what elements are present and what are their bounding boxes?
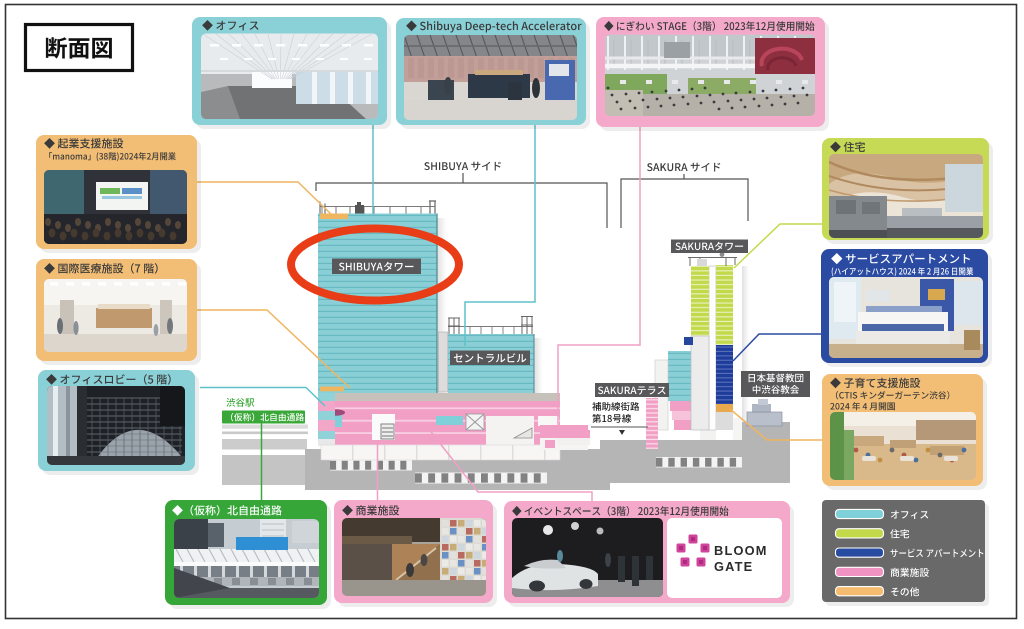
svg-text:GATE: GATE — [714, 559, 753, 574]
svg-text:BLOOM: BLOOM — [714, 543, 768, 558]
